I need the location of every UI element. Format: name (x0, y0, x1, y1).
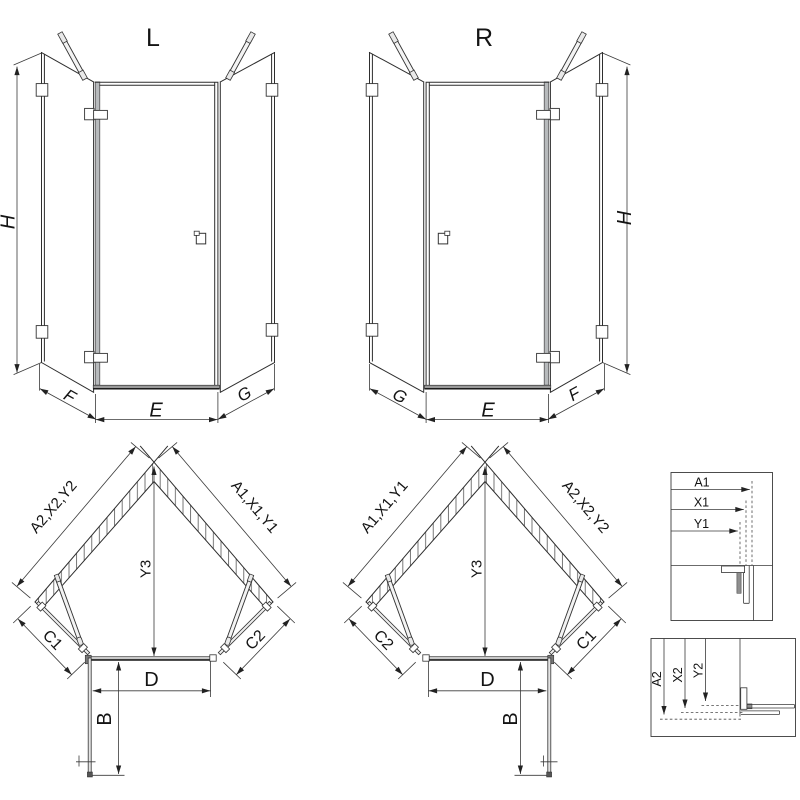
plan-r-b-label: B (500, 712, 522, 725)
front-view-right-geometry (366, 32, 630, 423)
detail-bottom-label-a2: A2 (650, 671, 664, 686)
view-l-title: L (146, 24, 160, 52)
detail-bottom-label-x2: X2 (671, 667, 685, 682)
detail-top-label-a1: A1 (694, 476, 709, 490)
detail-top-frame (671, 473, 773, 621)
plan-r-d-label: D (480, 669, 494, 691)
detail-bottom-label-y2: Y2 (692, 663, 706, 678)
plan-view-right: A1,X1,Y1 A2,X2,Y2 Y3 C2 C1 D B (343, 442, 627, 777)
plan-view-left: A2,X2,Y2 A1,X1,Y1 Y3 C1 C2 D B (12, 442, 296, 777)
dim-label-g-left: G (234, 383, 255, 406)
front-view-right: R H G E F (366, 24, 636, 423)
plan-l-wall-left-label: A2,X2,Y2 (27, 477, 81, 536)
plan-l-c2-label: C2 (243, 627, 270, 654)
front-view-left-geometry (14, 32, 278, 423)
shower-enclosure-drawing: L H F E G R H G E F A2,X2,Y2 A1,X1,Y1 Y3… (0, 0, 800, 800)
plan-r-c1-label: C1 (574, 627, 601, 654)
detail-top-bracket (722, 566, 745, 573)
detail-top-label-x1: X1 (694, 496, 709, 510)
plan-door-handle-left (76, 756, 96, 767)
plan-l-c1-label: C1 (39, 627, 66, 654)
plan-r-wall-right-label: A2,X2,Y2 (558, 477, 612, 536)
dim-label-h-right: H (614, 210, 636, 225)
front-view-left: L H F E G (0, 24, 278, 423)
plan-l-d-label: D (144, 669, 158, 691)
detail-top-label-y1: Y1 (694, 517, 709, 531)
detail-top-reference-lines (740, 481, 752, 566)
detail-view-a2x2y2: A2 X2 Y2 (650, 639, 796, 737)
plan-l-b-label: B (94, 712, 116, 725)
plan-l-wall-right-label: A1,X1,Y1 (227, 477, 281, 536)
dim-label-f-left: F (61, 385, 81, 407)
dim-label-e-right: E (481, 400, 495, 422)
plan-r-y3-label: Y3 (469, 560, 486, 578)
detail-bottom-bracket (741, 688, 747, 710)
detail-bottom-frame (651, 639, 796, 737)
detail-view-a1x1y1: A1 X1 Y1 (671, 473, 773, 621)
dim-label-g-right: G (389, 385, 410, 408)
dim-label-f-right: F (565, 383, 585, 405)
dim-label-e-left: E (149, 400, 163, 422)
dim-label-h-left: H (0, 214, 20, 229)
plan-r-c2-label: C2 (370, 627, 397, 654)
plan-r-wall-left-label: A1,X1,Y1 (358, 477, 412, 536)
view-r-title: R (475, 24, 493, 52)
detail-top-profile (744, 566, 754, 621)
detail-bottom-reference-lines (660, 705, 743, 719)
plan-l-y3-label: Y3 (138, 560, 155, 578)
